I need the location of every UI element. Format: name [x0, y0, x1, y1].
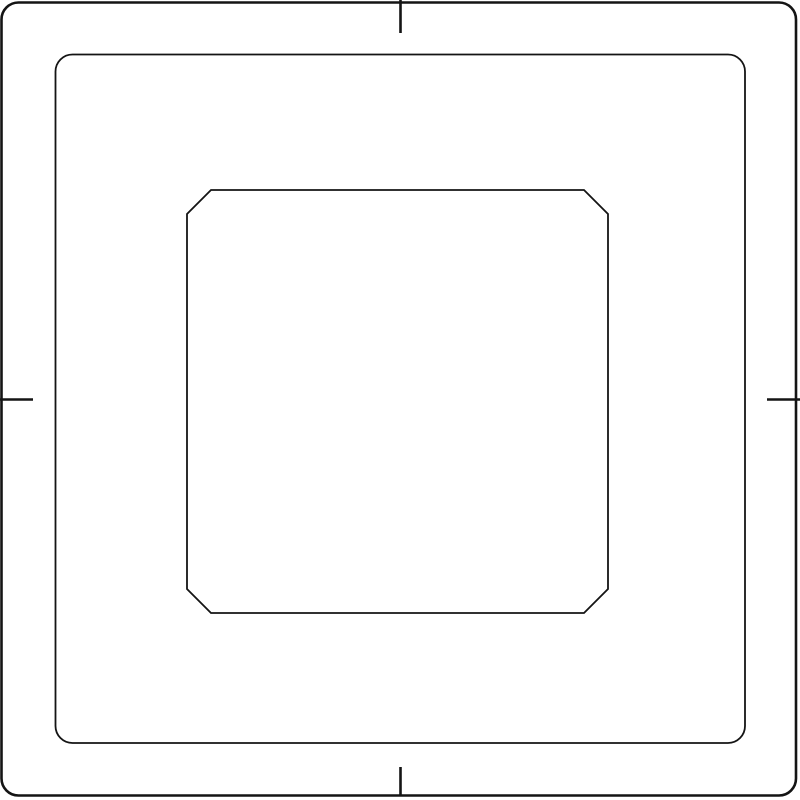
outer-frame-outline — [2, 3, 797, 796]
stencil-drawing — [0, 0, 800, 800]
center-plate-outline — [187, 190, 608, 613]
stencil-canvas — [0, 0, 800, 800]
inner-frame-outline — [56, 55, 746, 744]
